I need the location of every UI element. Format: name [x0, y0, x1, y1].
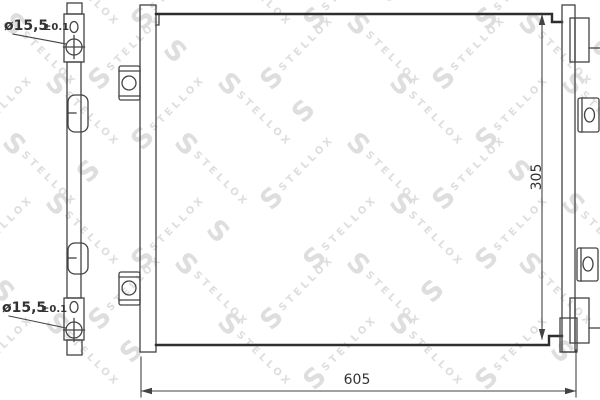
arrowhead-up: [539, 14, 545, 25]
mount-bracket-bottom-left: [119, 272, 140, 305]
rail-bottom-pin-hole: [70, 302, 78, 313]
rail-clip-top: [68, 95, 88, 132]
right-tank: [562, 5, 575, 352]
pipe-fitting-bottom-right: [570, 298, 600, 343]
pipe-fitting-top-right: [570, 18, 600, 62]
leader-line: [13, 34, 66, 44]
drawing-page: SSSTELLOXSSTELLOXSSTELLOXSSTELLOXSSSTELL…: [0, 0, 600, 400]
rail-top-pin-hole: [70, 22, 78, 33]
mount-bracket-top-left: [119, 66, 140, 100]
arrowhead-right: [565, 388, 576, 394]
rail-top-mount-hole: [64, 36, 85, 59]
core-bottom-edge: [156, 336, 562, 345]
leader-line: [9, 316, 66, 328]
left-mounting-rail: [64, 3, 89, 355]
bracket-hole: [585, 108, 595, 122]
hole-dimension-bottom: ø15,5 ±0.1: [2, 300, 67, 328]
core-top-edge: [156, 14, 562, 22]
height-value: 305: [529, 164, 545, 191]
mount-bracket-bottom-right: [577, 248, 598, 281]
left-tank: [140, 5, 156, 352]
hole-diameter-bottom-label: ø15,5: [2, 300, 46, 316]
bracket-hole: [122, 76, 136, 90]
width-dimension: 605: [141, 350, 576, 397]
height-dimension: 305: [529, 14, 545, 340]
hole-diameter-bottom-tolerance: ±0.1: [41, 304, 67, 315]
condenser-body: [119, 5, 600, 352]
condenser-technical-drawing: ø15,5 ±0.1 ø15,5 ±0.1: [0, 0, 600, 400]
arrowhead-down: [539, 329, 545, 340]
mount-bracket-top-right: [578, 98, 599, 132]
rail-clip-bottom: [68, 243, 88, 274]
rail-top-stub: [67, 3, 82, 14]
hole-dimension-top: ø15,5 ±0.1: [4, 18, 69, 44]
rail-bottom-mount-hole: [64, 319, 85, 342]
arrowhead-left: [141, 388, 152, 394]
bracket-hole: [122, 281, 136, 295]
rail-bottom-stub: [67, 340, 82, 355]
bracket-hole: [583, 257, 593, 271]
hole-diameter-top-label: ø15,5: [4, 18, 48, 34]
width-value: 605: [344, 372, 371, 388]
hole-diameter-top-tolerance: ±0.1: [43, 22, 69, 33]
